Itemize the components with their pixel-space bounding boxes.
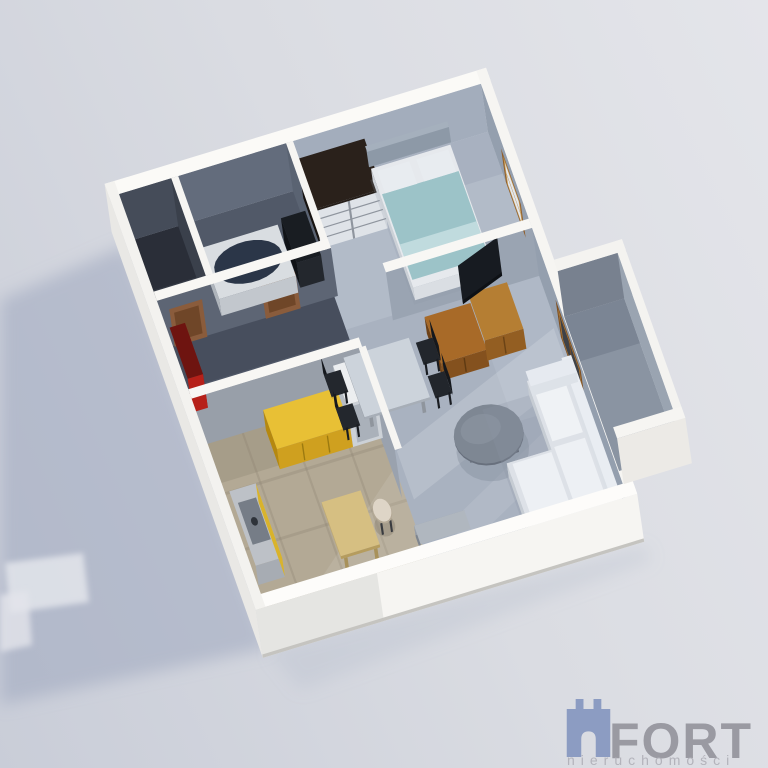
- scene-shape: [0, 591, 32, 652]
- floorplan-3d-render: [0, 0, 768, 768]
- render-background: FORT nieruchomości: [0, 0, 768, 768]
